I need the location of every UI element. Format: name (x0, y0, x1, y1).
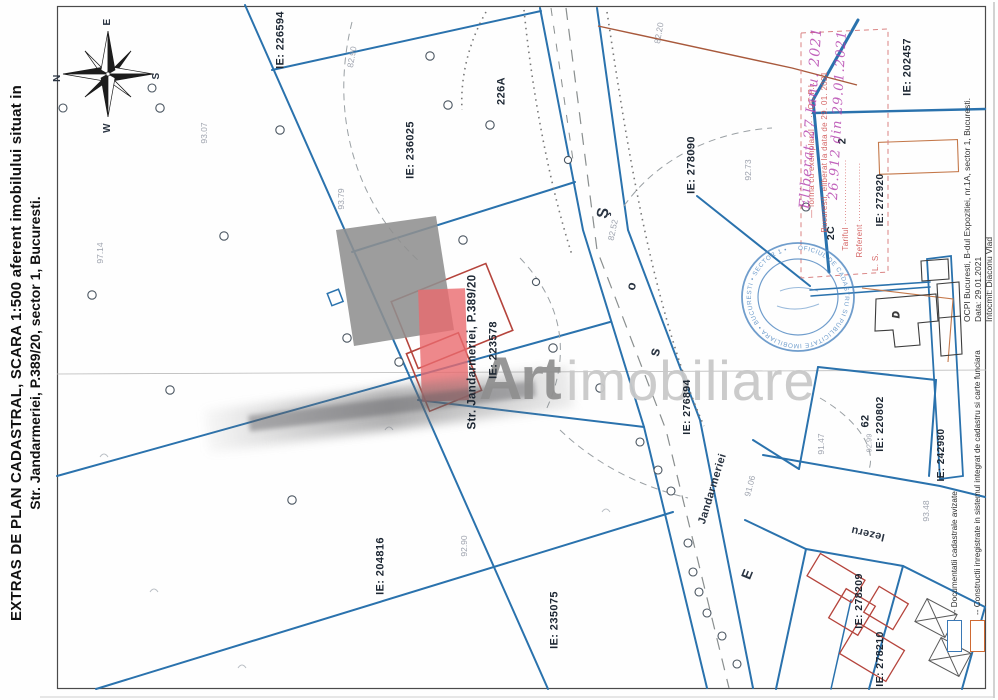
parcel-label-ie-235075: IE: 235075 (550, 591, 561, 649)
legend-item-constructii: -- Constructii inregistrate in sistemul … (966, 312, 989, 652)
legend-item-documentatii: -- Documentatii cadastrale avizate (943, 312, 966, 652)
parcel-label-ie-202457: IE: 202457 (903, 38, 914, 96)
parcel-label-ie-276894: IE: 276894 (682, 379, 693, 434)
red-stamp-text-line: Referent ···················· (856, 163, 864, 258)
parcel-label-ie-278090: IE: 278090 (687, 136, 698, 194)
parcel-label-ie-220802: IE: 220802 (875, 396, 886, 451)
parcel-label-ie-226594: IE: 226594 (276, 11, 287, 69)
parcel-label-ie-278210: IE: 278210 (875, 631, 886, 686)
elevation-mark: 93.07 (200, 122, 209, 143)
parcel-label-ie-236025: IE: 236025 (406, 121, 417, 179)
legend: -- Documentatii cadastrale avizate -- Co… (943, 312, 989, 652)
legend-swatch-orange (970, 620, 985, 652)
legend-swatch-blue (947, 620, 962, 652)
street-label-iezeru: Iezeru (850, 524, 886, 542)
elevation-mark: 92.99 (865, 434, 873, 453)
elevation-mark: 82.20 (653, 22, 665, 44)
compass-label-s: S (152, 72, 162, 79)
elevation-mark: 91.06 (743, 475, 757, 498)
parcel-label-226a: 226A (497, 77, 508, 105)
elevation-mark: 82.52 (607, 219, 620, 242)
document-title-line1: EXTRAS DE PLAN CADASTRAL, SCARA 1:500 af… (8, 20, 25, 686)
parcel-label-ie-204816: IE: 204816 (376, 537, 387, 595)
red-stamp-text-line: L. S. (872, 253, 880, 271)
issuer-date: Data: 29.01.2021 (973, 30, 984, 322)
road-letter: E (739, 567, 756, 581)
elevation-mark: 92.73 (744, 159, 753, 180)
road-letter: s (647, 346, 664, 358)
road-name: Jandarmeriei (697, 452, 729, 525)
legend-label: -- Documentatii cadastrale avizate (950, 491, 959, 615)
elevation-mark: 92.90 (460, 535, 469, 556)
elevation-mark: 93.48 (922, 500, 931, 521)
parcel-label-ie-223578: IE: 223578 (489, 321, 500, 379)
issuer-block: OCPI Bucuresti, B-dul Expozitiei, nr.1A,… (962, 30, 998, 322)
map-label-layer: IE: 226594IE: 236025226AIE: 278090IE: 20… (0, 0, 998, 700)
legend-label: -- Constructii inregistrate in sistemul … (973, 350, 982, 615)
parcel-label-ie-272920: IE: 272920 (876, 174, 886, 227)
site-address-label: Str. Jandarmeriei, P.389/20 (467, 274, 479, 429)
cadastral-plan-scan: D (0, 0, 998, 700)
elevation-mark: 91.47 (817, 433, 826, 454)
compass-label-w: W (103, 123, 113, 133)
parcel-label-62: 62 (861, 414, 872, 427)
compass-label-n: N (53, 74, 63, 82)
compass-label-e: E (103, 18, 113, 25)
issuer-author: Intocmit: Diaconu Vlad (984, 30, 995, 322)
title-block: EXTRAS DE PLAN CADASTRAL, SCARA 1:500 af… (8, 20, 52, 686)
red-stamp-text-line: Tariful ······················ (842, 159, 850, 250)
issuer-address: OCPI Bucuresti, B-dul Expozitiei, nr.1A,… (962, 30, 973, 322)
elevation-mark: 93.79 (337, 188, 346, 209)
parcel-label-ie-278209: IE: 278209 (854, 573, 865, 628)
elevation-mark: 97.14 (96, 242, 105, 263)
document-title-line2: Str. Jandarmeriei, P.389/20, sector 1, B… (27, 20, 43, 686)
elevation-mark: 82.90 (346, 46, 358, 68)
road-letter: o (624, 280, 639, 291)
